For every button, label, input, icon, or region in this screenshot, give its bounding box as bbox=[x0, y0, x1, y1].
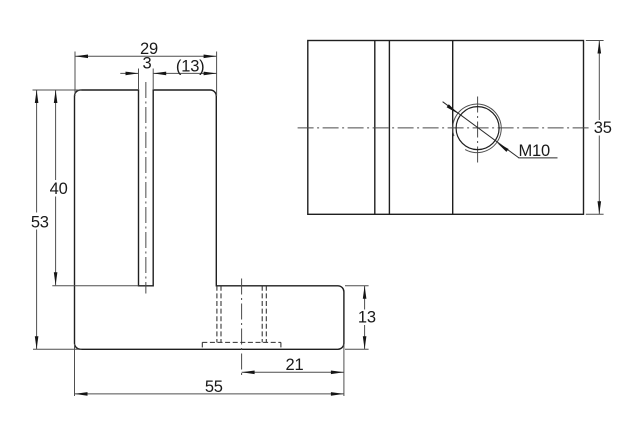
svg-text:13: 13 bbox=[358, 309, 376, 327]
svg-text:53: 53 bbox=[31, 213, 49, 231]
svg-text:21: 21 bbox=[286, 356, 304, 374]
svg-text:3: 3 bbox=[143, 54, 152, 72]
svg-text:M10: M10 bbox=[519, 142, 551, 160]
svg-text:55: 55 bbox=[205, 378, 223, 396]
svg-text:40: 40 bbox=[50, 180, 68, 198]
svg-text:(13): (13) bbox=[176, 57, 205, 75]
svg-text:35: 35 bbox=[594, 119, 612, 137]
